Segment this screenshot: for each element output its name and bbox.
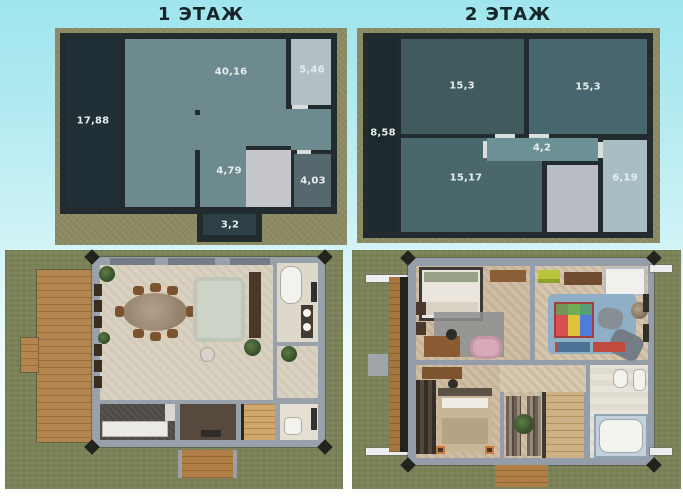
room-area-label: 40,16 (215, 67, 248, 78)
room-area-label: 6,19 (612, 173, 637, 184)
sink (303, 323, 311, 331)
plan1-column (195, 110, 200, 115)
toy-dresser (564, 272, 602, 285)
room-area-label: 15,17 (450, 173, 483, 184)
plant (244, 339, 261, 356)
upper-hall-floor (500, 365, 586, 392)
awning (650, 448, 672, 455)
entry-steps (182, 450, 233, 478)
render-floor2 (352, 250, 681, 489)
window-frame (643, 324, 649, 342)
window-frame (94, 360, 102, 372)
coffee-table (201, 348, 214, 361)
plan2-door-left-bedroom (495, 134, 515, 138)
dining-chair (115, 306, 124, 317)
entry-steps-2 (495, 465, 548, 487)
side-step-pad (21, 338, 38, 372)
kitchen-counter (103, 422, 167, 436)
stair-railing (241, 404, 244, 440)
plan2-door-bathroom (598, 142, 603, 158)
toilet (614, 370, 627, 387)
kitchen-cabinet (165, 404, 175, 421)
plan2-stairs (547, 165, 598, 232)
wall-shelf (490, 270, 526, 282)
desk (424, 336, 460, 357)
room-area-label: 15,3 (449, 81, 474, 92)
play-mat (556, 304, 592, 336)
night-lamp (485, 446, 494, 454)
staircase (241, 404, 275, 440)
armchair-pink (470, 336, 502, 359)
window-frame (94, 344, 102, 356)
room-area-label: 4,79 (216, 166, 241, 177)
plan1-stairs (246, 150, 291, 207)
desk-chair (446, 329, 457, 340)
room-area-label: 8,58 (370, 128, 395, 139)
window-frame (94, 284, 102, 296)
render-floor1 (5, 250, 343, 489)
room-area-label: 15,3 (575, 82, 600, 93)
washer (285, 418, 301, 434)
dining-chair (133, 329, 144, 338)
bathtub-2 (600, 420, 642, 452)
dining-chair (150, 332, 161, 341)
plant-large (514, 414, 534, 434)
dining-table (123, 293, 187, 331)
floor2-title: 2 ЭТАЖ (465, 4, 551, 25)
window-frame (94, 300, 102, 312)
room-area-label: 3,2 (221, 220, 239, 231)
plan1-door-546 (292, 105, 308, 109)
bathtub (281, 267, 301, 303)
headboard (438, 388, 492, 396)
dining-chair (167, 286, 178, 295)
bed2-throw (442, 418, 488, 444)
wall-mirror (311, 408, 317, 430)
window-opening (110, 258, 155, 265)
porch-rail (233, 450, 237, 478)
room-area-label: 17,88 (77, 116, 110, 127)
dining-chair (150, 283, 161, 292)
plan1-door-403 (297, 150, 311, 154)
window-frame (94, 316, 102, 328)
wardrobe-dark (416, 380, 436, 454)
plant (99, 266, 115, 282)
plan2-room-bathroom (603, 140, 647, 232)
window-frame (643, 294, 649, 312)
window-opening (230, 258, 270, 265)
staircase-2 (546, 392, 584, 458)
tv-cabinet (249, 272, 261, 338)
kids-shelf-lime (538, 270, 560, 283)
floorplan-sheet: 1 ЭТАЖ 2 ЭТАЖ 17,88 40,16 5,46 4,79 4,03… (0, 0, 683, 502)
sink (303, 309, 311, 317)
dining-chair (133, 286, 144, 295)
window-frame (94, 376, 102, 388)
nightstand (416, 302, 426, 315)
hall-bench (201, 430, 221, 437)
room-area-label: 5,46 (299, 65, 324, 76)
terrace-deck (37, 270, 95, 442)
plan1-wall-stub (195, 150, 200, 207)
plant (98, 332, 110, 344)
plant (281, 346, 297, 362)
room-area-label: 4,2 (533, 143, 551, 154)
desk-2 (422, 367, 462, 379)
floor1-title: 1 ЭТАЖ (158, 4, 244, 25)
stair-wall (542, 392, 546, 458)
plan2-door-right-bedroom (529, 134, 549, 138)
dining-chair (167, 329, 178, 338)
window-opening (168, 258, 215, 265)
room-area-label: 4,03 (300, 176, 325, 187)
ac-pad (368, 354, 388, 376)
plan2-door-corridor-left (483, 141, 487, 158)
night-lamp (436, 446, 445, 454)
kids-bench (558, 342, 590, 352)
living-dining-floor (100, 265, 273, 400)
nightstand (416, 322, 426, 335)
roof-edge (400, 277, 408, 452)
mirror (311, 282, 317, 302)
sofa (193, 277, 245, 342)
balcony-deck (389, 277, 400, 452)
bed-pillows (424, 272, 478, 282)
bed2-pillows (442, 398, 488, 408)
kids-bed (606, 269, 644, 294)
sink-2 (634, 370, 645, 390)
